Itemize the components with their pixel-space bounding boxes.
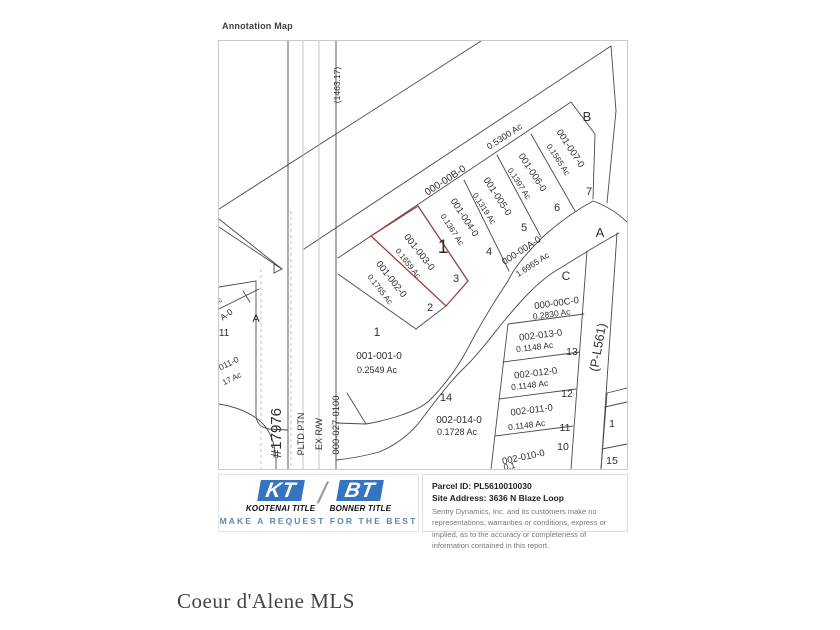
map-label-block-b: B xyxy=(583,109,592,124)
parcel-info-box: Parcel ID: PL5610010030 Site Address: 36… xyxy=(422,474,628,532)
map-label-acreage-002-010-0: 0.1 xyxy=(503,460,517,469)
report-footer: KT KOOTENAI TITLE / BT BONNER TITLE MAKE… xyxy=(218,474,628,532)
map-label-lot-3: 3 xyxy=(453,273,459,285)
map-label-survey-17976: #17976 xyxy=(268,408,285,458)
map-label-annotation-marker-1: 1 xyxy=(438,237,449,258)
map-label-lot-5: 5 xyxy=(521,222,527,234)
map-label-block-c: C xyxy=(562,269,571,283)
map-label-road-p-l561: (P-L561) xyxy=(587,322,609,372)
map-label-parcel-000-00b-0: 000-00B-0 xyxy=(423,163,469,198)
bt-logo-icon: BT xyxy=(337,480,385,501)
parcel-id: Parcel ID: PL5610010030 xyxy=(432,481,618,491)
logo-row: KT KOOTENAI TITLE / BT BONNER TITLE xyxy=(246,480,391,512)
map-label-ex-rw: EX R/W xyxy=(314,418,324,451)
column-right-edge xyxy=(571,251,587,469)
map-label-lot-12: 12 xyxy=(561,388,573,400)
bonner-title-label: BONNER TITLE xyxy=(330,504,392,513)
map-label-parcel-002-014-0: 002-014-0 xyxy=(436,415,482,426)
map-label-lot-2: 2 xyxy=(427,302,433,314)
map-label-lot-7: 7 xyxy=(586,186,592,198)
map-label-partial-ac-left: c xyxy=(219,297,224,305)
title-company-logo: KT KOOTENAI TITLE / BT BONNER TITLE MAKE… xyxy=(218,474,419,532)
left-parcel-line xyxy=(219,289,259,309)
map-label-acreage-002-014-0: 0.1728 Ac xyxy=(437,427,478,437)
annotation-map: (1463.17)#17976PLTD PTNEX R/W000-027-010… xyxy=(218,40,628,470)
map-label-partial-parcel-a-0: A-0 xyxy=(219,306,235,322)
logo-slash-icon: / xyxy=(318,480,326,509)
map-label-block-a-left: A xyxy=(252,313,260,325)
kootenai-title-label: KOOTENAI TITLE xyxy=(246,504,315,513)
plat-labels: (1463.17)#17976PLTD PTNEX R/W000-027-010… xyxy=(219,67,618,469)
map-label-block-a: A xyxy=(596,225,605,240)
divider-lot15 xyxy=(602,444,627,449)
kt-logo-icon: KT xyxy=(257,480,305,501)
map-label-parcel-000-027-0100: 000-027-0100 xyxy=(331,395,342,454)
map-label-lot-4: 4 xyxy=(486,246,492,258)
map-label-lot-14: 14 xyxy=(440,392,452,404)
map-label-lot-6: 6 xyxy=(554,202,560,214)
map-label-partial-parcel-011-0: 011-0 xyxy=(219,354,241,372)
survey-arrow-line-lower xyxy=(219,227,282,269)
plat-svg: (1463.17)#17976PLTD PTNEX R/W000-027-010… xyxy=(219,41,627,469)
map-label-parcel-002-011-0: 002-011-0 xyxy=(510,402,554,418)
kootenai-logo: KT KOOTENAI TITLE xyxy=(246,480,315,512)
map-label-acreage-001-001-0: 0.2549 Ac xyxy=(357,365,398,375)
disclaimer-text: Sentry Dynamics, Inc. and its customers … xyxy=(432,506,618,551)
map-label-lot-16-partial: 1 xyxy=(609,418,615,430)
left-parcel-top-line xyxy=(219,281,256,287)
street-north-edge xyxy=(336,201,627,424)
lot1-south-line xyxy=(347,393,366,424)
site-address: Site Address: 3636 N Blaze Loop xyxy=(432,493,618,503)
survey-arrow-line-upper xyxy=(219,219,282,269)
map-label-parcel-001-001-0: 001-001-0 xyxy=(356,351,402,362)
lot16-top-line xyxy=(607,388,627,393)
map-label-lot-15: 15 xyxy=(606,455,618,467)
map-label-lot-10: 10 xyxy=(557,441,569,453)
map-label-dim-1463-17: (1463.17) xyxy=(332,67,342,104)
bonner-logo: BT BONNER TITLE xyxy=(330,480,392,512)
page-title: Annotation Map xyxy=(222,21,293,31)
map-label-pltd-ptn: PLTD PTN xyxy=(296,413,306,456)
map-label-lot-11-left: 11 xyxy=(219,328,230,339)
plat-lines-light xyxy=(261,41,319,469)
boundary-ne-corner xyxy=(607,46,616,203)
mls-watermark: Coeur d'Alene MLS xyxy=(177,589,355,614)
map-label-lot-13: 13 xyxy=(566,346,578,358)
map-label-lot-11: 11 xyxy=(560,422,571,434)
logo-tagline: MAKE A REQUEST FOR THE BEST xyxy=(220,516,418,526)
map-label-lot-1: 1 xyxy=(374,325,381,339)
map-label-partial-acreage-17: 17 Ac xyxy=(221,370,243,387)
divider-lot16 xyxy=(605,402,627,407)
column-left-edge xyxy=(491,324,508,469)
